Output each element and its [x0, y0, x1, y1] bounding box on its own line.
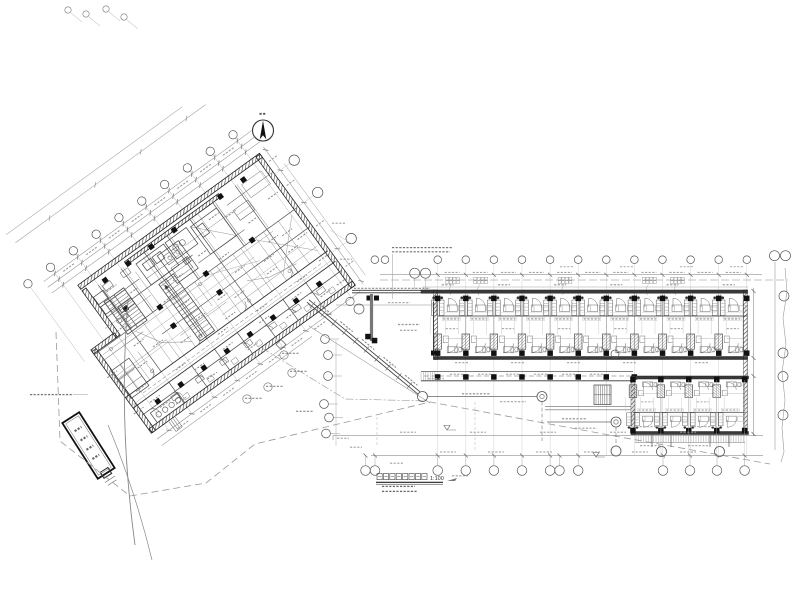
svg-text:1:100: 1:100 [430, 476, 444, 482]
